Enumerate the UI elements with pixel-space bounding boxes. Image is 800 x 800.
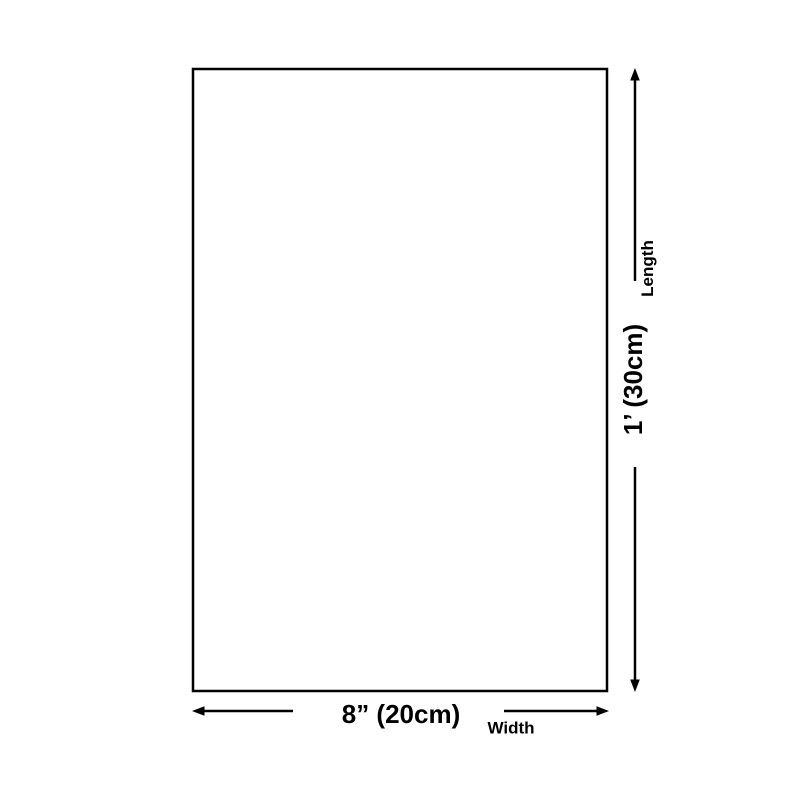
svg-text:Length: Length — [638, 240, 657, 297]
svg-text:8” (20cm): 8” (20cm) — [342, 699, 461, 729]
svg-text:1’ (30cm): 1’ (30cm) — [618, 324, 648, 435]
svg-text:Width: Width — [487, 719, 534, 738]
